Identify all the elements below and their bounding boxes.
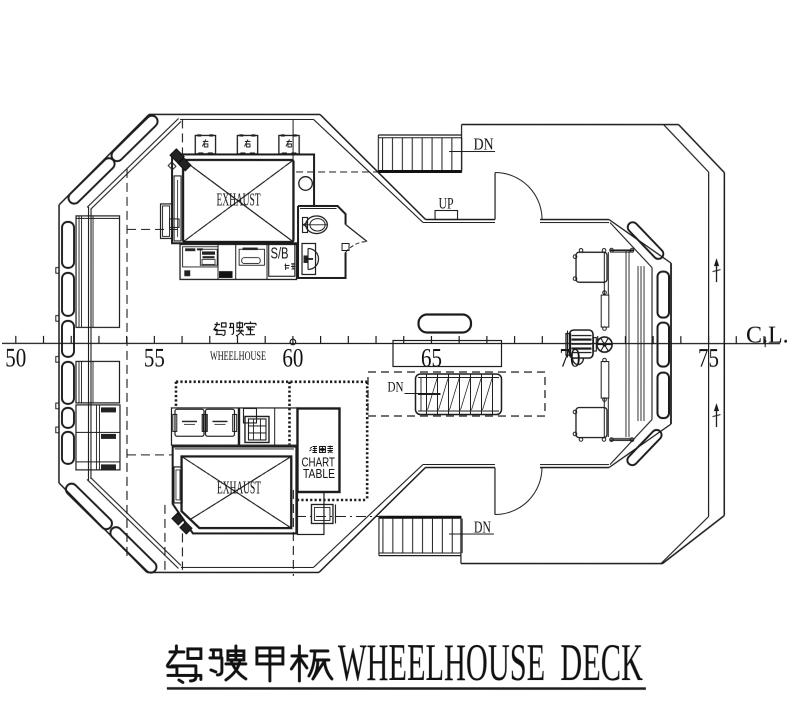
svg-text:55: 55	[144, 343, 165, 372]
svg-text:TABLE: TABLE	[303, 467, 335, 481]
svg-text:DN: DN	[387, 379, 403, 395]
svg-text:50: 50	[5, 343, 26, 372]
svg-text:WHEELHOUSE: WHEELHOUSE	[210, 349, 266, 363]
svg-text:EXHAUST: EXHAUST	[217, 477, 261, 497]
svg-text:L.: L.	[768, 323, 789, 349]
svg-text:S/B: S/B	[271, 245, 289, 262]
svg-text:EXHAUST: EXHAUST	[217, 189, 261, 209]
svg-text:DN: DN	[474, 135, 494, 154]
svg-text:60: 60	[282, 343, 303, 372]
svg-text:65: 65	[421, 344, 442, 373]
svg-text:UP: UP	[439, 196, 454, 213]
svg-text:WHEELHOUSE DECK: WHEELHOUSE DECK	[338, 634, 643, 692]
